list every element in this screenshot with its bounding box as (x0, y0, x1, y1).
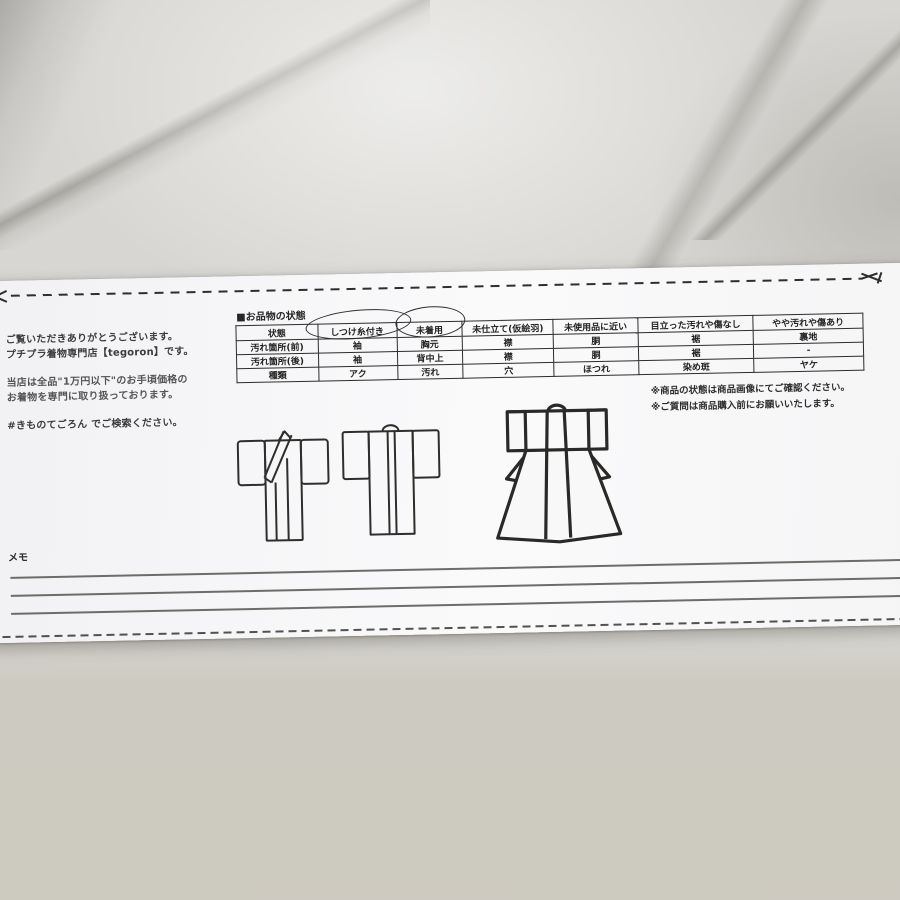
price-policy-line-2: お着物を専門に取り扱っております。 (7, 389, 179, 403)
cell: 穴 (463, 362, 554, 378)
note-ask-before-purchase: ※ご質問は商品購入前にお願いいたします。 (651, 396, 851, 416)
cell: 胸元 (397, 336, 463, 351)
row-label-type: 種類 (237, 367, 319, 383)
header-nearly-unused: 未使用品に近い (553, 318, 638, 335)
cell: ほつれ (554, 361, 639, 377)
cell: ヤケ (754, 356, 864, 372)
greeting-line-1: ご覧いただきありがとうございます。 (6, 331, 179, 345)
header-state: 状態 (236, 324, 318, 341)
condition-table: 状態 しつけ糸付き 未着用 未仕立て(仮絵羽) 未使用品に近い 目立った汚れや傷… (235, 313, 864, 384)
cell: 染め斑 (639, 358, 755, 374)
cut-line-top (11, 278, 863, 297)
cut-arrow-left-icon (0, 289, 9, 304)
kimono-back-view-illustration (339, 418, 443, 538)
header-basting-thread: しつけ糸付き (317, 323, 396, 340)
kimono-front-view-illustration (234, 424, 332, 544)
price-policy-line-1: 当店は全品"1万円以下"のお手頃価格の (6, 374, 187, 389)
condition-table-section: ■お品物の状態 状態 しつけ糸付き 未着用 未仕立て(仮絵羽) 未使用品に近い … (235, 296, 864, 384)
cell: 背中上 (397, 350, 463, 365)
kimono-flared-back-illustration (485, 396, 630, 547)
memo-line (10, 559, 900, 579)
shop-greeting: ご覧いただきありがとうございます。 プチプラ着物専門店【tegoron】です。 … (6, 328, 230, 446)
scissors-icon (860, 269, 884, 286)
notes-block: ※商品の状態は商品画像にてご確認ください。 ※ご質問は商品購入前にお願いいたしま… (651, 380, 851, 416)
header-unworn: 未着用 (396, 321, 462, 337)
printed-slip: ご覧いただきありがとうございます。 プチプラ着物専門店【tegoron】です。 … (0, 263, 900, 644)
shop-name-line: プチプラ着物専門店【tegoron】です。 (6, 346, 194, 361)
cell: アク (318, 366, 397, 382)
cell: 汚れ (397, 364, 463, 379)
hashtag-search-line: #きものてごろん でご検索ください。 (7, 417, 183, 432)
memo-line (11, 577, 900, 597)
memo-line (11, 595, 900, 615)
memo-label: メモ (8, 548, 28, 563)
